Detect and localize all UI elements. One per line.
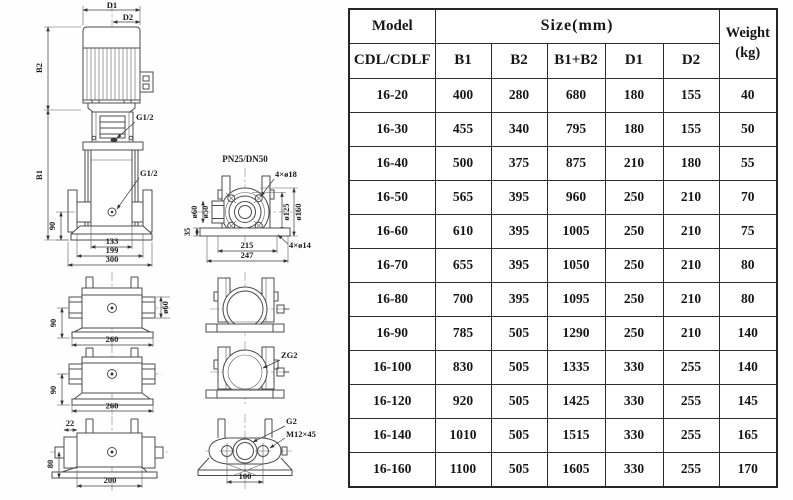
motor [83, 27, 153, 112]
dim-label-200: 200 [104, 475, 117, 485]
value-cell: 55 [719, 146, 777, 180]
value-cell: 785 [435, 316, 491, 350]
flange-plan-view: PN25/DN50 ø60 ø50 4×ø18 [182, 154, 312, 263]
value-cell: 400 [435, 78, 491, 112]
value-cell: 50 [719, 112, 777, 146]
value-cell: 455 [435, 112, 491, 146]
value-cell: 180 [605, 112, 663, 146]
value-cell: 250 [605, 282, 663, 316]
value-cell: 255 [663, 384, 719, 418]
thread-label-g12-mid: G1/2 [140, 168, 157, 178]
bolt-holes-bottom-label: 4×ø14 [289, 240, 312, 250]
table-row: 16-2040028068018015540 [349, 78, 777, 112]
model-cell: 16-140 [349, 418, 435, 452]
vent-plug [111, 138, 118, 142]
value-cell: 280 [491, 78, 547, 112]
value-cell: 180 [605, 78, 663, 112]
thread-label-g12-top: G1/2 [136, 112, 153, 122]
value-cell: 395 [491, 214, 547, 248]
header-weight-top: Weight [726, 25, 770, 41]
dim-label-80: 80 [45, 460, 55, 469]
value-cell: 1335 [547, 350, 605, 384]
dim-label-22: 22 [66, 418, 75, 428]
value-cell: 250 [605, 316, 663, 350]
model-cell: 16-80 [349, 282, 435, 316]
value-cell: 1010 [435, 418, 491, 452]
base-bottom-view: 22 80 200 [45, 416, 168, 492]
header-col-b2: B2 [491, 43, 547, 78]
value-cell: 170 [719, 452, 777, 487]
value-cell: 250 [605, 180, 663, 214]
header-weight: Weight (kg) [719, 9, 777, 78]
value-cell: 250 [605, 248, 663, 282]
value-cell: 875 [547, 146, 605, 180]
model-cell: 16-60 [349, 214, 435, 248]
model-cell: 16-50 [349, 180, 435, 214]
value-cell: 1050 [547, 248, 605, 282]
value-cell: 140 [719, 316, 777, 350]
header-weight-unit: (kg) [735, 45, 760, 61]
value-cell: 505 [491, 316, 547, 350]
value-cell: 1425 [547, 384, 605, 418]
value-cell: 920 [435, 384, 491, 418]
dim-label-b2: B2 [34, 63, 44, 73]
header-col-d1: D1 [605, 43, 663, 78]
dim-label-dia50-flange: ø50 [200, 206, 210, 219]
dim-label-260-s1: 260 [106, 334, 119, 344]
dim-label-35: 35 [182, 228, 192, 237]
spec-table-body: 16-204002806801801554016-304553407951801… [349, 78, 777, 487]
value-cell: 330 [605, 350, 663, 384]
value-cell: 255 [663, 452, 719, 487]
value-cell: 505 [491, 452, 547, 487]
header-model-sub: CDL/CDLF [349, 43, 435, 78]
dim-label-90-front: 90 [47, 222, 57, 231]
table-row: 16-3045534079518015550 [349, 112, 777, 146]
value-cell: 395 [491, 282, 547, 316]
value-cell: 1605 [547, 452, 605, 487]
table-row: 16-14010105051515330255165 [349, 418, 777, 452]
support-side-view-2: ZG2 [206, 341, 298, 404]
table-row: 16-60610395100525021075 [349, 214, 777, 248]
value-cell: 145 [719, 384, 777, 418]
value-cell: 180 [663, 146, 719, 180]
table-row: 16-5056539596025021070 [349, 180, 777, 214]
model-cell: 16-40 [349, 146, 435, 180]
dim-label-b1: B1 [34, 170, 44, 180]
dim-label-d1: D1 [107, 0, 117, 10]
model-cell: 16-160 [349, 452, 435, 487]
dim-label-300: 300 [106, 254, 119, 264]
value-cell: 330 [605, 418, 663, 452]
table-row: 16-907855051290250210140 [349, 316, 777, 350]
dim-label-247: 247 [241, 250, 255, 260]
value-cell: 610 [435, 214, 491, 248]
model-cell: 16-30 [349, 112, 435, 146]
value-cell: 565 [435, 180, 491, 214]
value-cell: 395 [491, 180, 547, 214]
value-cell: 330 [605, 452, 663, 487]
value-cell: 210 [663, 248, 719, 282]
value-cell: 960 [547, 180, 605, 214]
table-row: 16-70655395105025021080 [349, 248, 777, 282]
value-cell: 505 [491, 384, 547, 418]
thread-label-g2: G2 [286, 416, 297, 426]
thread-label-zg2: ZG2 [281, 350, 298, 360]
value-cell: 500 [435, 146, 491, 180]
value-cell: 75 [719, 214, 777, 248]
value-cell: 330 [605, 384, 663, 418]
header-col-b1: B1 [435, 43, 491, 78]
header-col-d2: D2 [663, 43, 719, 78]
table-row: 16-1008305051335330255140 [349, 350, 777, 384]
bolt-label-m12x45: M12×45 [286, 429, 316, 439]
table-row: 16-80700395109525021080 [349, 282, 777, 316]
pump-head [92, 112, 133, 142]
value-cell: 255 [663, 418, 719, 452]
model-cell: 16-20 [349, 78, 435, 112]
value-cell: 210 [605, 146, 663, 180]
table-row: 16-4050037587521018055 [349, 146, 777, 180]
support-side-view-1 [206, 272, 290, 338]
value-cell: 505 [491, 418, 547, 452]
dim-label-260-s2: 260 [106, 401, 119, 411]
value-cell: 680 [547, 78, 605, 112]
value-cell: 140 [719, 350, 777, 384]
table-row: 16-1209205051425330255145 [349, 384, 777, 418]
value-cell: 210 [663, 282, 719, 316]
value-cell: 210 [663, 316, 719, 350]
pump-dimension-drawing: D1 D2 B2 B1 [0, 0, 347, 500]
value-cell: 1095 [547, 282, 605, 316]
bolt-holes-top-label: 4×ø18 [275, 169, 297, 179]
port-flange-view: G2 M12×45 100 [198, 414, 316, 490]
value-cell: 795 [547, 112, 605, 146]
value-cell: 340 [491, 112, 547, 146]
value-cell: 155 [663, 78, 719, 112]
model-cell: 16-70 [349, 248, 435, 282]
model-cell: 16-120 [349, 384, 435, 418]
dim-label-dia160: ø160 [293, 204, 303, 221]
header-col-b1b2: B1+B2 [547, 43, 605, 78]
front-elevation-view: D1 D2 B2 B1 [34, 0, 157, 267]
header-size-group: Size(mm) [435, 9, 719, 43]
dim-label-d2: D2 [123, 12, 133, 22]
value-cell: 210 [663, 180, 719, 214]
value-cell: 655 [435, 248, 491, 282]
value-cell: 250 [605, 214, 663, 248]
value-cell: 375 [491, 146, 547, 180]
pump-datasheet: D1 D2 B2 B1 [0, 0, 793, 500]
value-cell: 505 [491, 350, 547, 384]
value-cell: 1005 [547, 214, 605, 248]
value-cell: 255 [663, 350, 719, 384]
dim-label-100: 100 [239, 471, 252, 481]
dim-label-dia60-s1: ø60 [160, 301, 170, 314]
model-cell: 16-100 [349, 350, 435, 384]
value-cell: 1100 [435, 452, 491, 487]
dim-label-215: 215 [241, 240, 254, 250]
value-cell: 40 [719, 78, 777, 112]
value-cell: 395 [491, 248, 547, 282]
value-cell: 1290 [547, 316, 605, 350]
dim-label-90-s1: 90 [48, 319, 58, 328]
dim-label-dia60-flange: ø60 [189, 206, 199, 219]
value-cell: 1515 [547, 418, 605, 452]
dim-label-90-s2: 90 [48, 386, 58, 395]
value-cell: 80 [719, 248, 777, 282]
model-cell: 16-90 [349, 316, 435, 350]
spec-table: Model Size(mm) Weight (kg) CDL/CDLF B1 B… [348, 8, 778, 488]
value-cell: 830 [435, 350, 491, 384]
base-section-view-1: 90 260 ø60 [48, 272, 170, 348]
value-cell: 165 [719, 418, 777, 452]
value-cell: 80 [719, 282, 777, 316]
header-model: Model [349, 9, 435, 43]
flange-rating-label: PN25/DN50 [222, 154, 268, 164]
value-cell: 700 [435, 282, 491, 316]
value-cell: 155 [663, 112, 719, 146]
value-cell: 210 [663, 214, 719, 248]
value-cell: 70 [719, 180, 777, 214]
base-section-view-2: 90 260 [48, 344, 162, 415]
table-row: 16-16011005051605330255170 [349, 452, 777, 487]
dim-label-dia125: ø125 [281, 204, 291, 221]
